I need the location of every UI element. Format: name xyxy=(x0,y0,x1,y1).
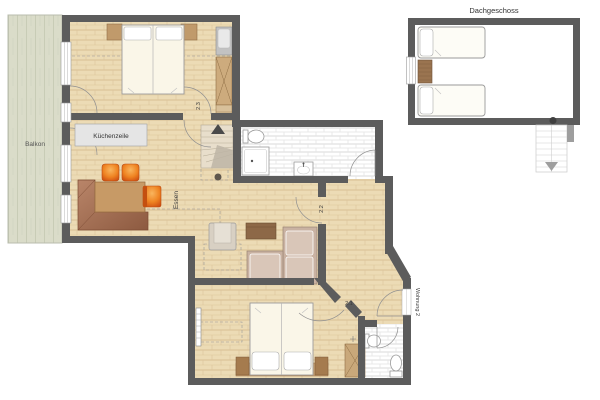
radiator-icon xyxy=(196,308,201,346)
nightstand-icon xyxy=(107,24,122,40)
wardrobe-icon xyxy=(216,57,232,105)
dining-label: Essen xyxy=(173,191,180,209)
room-code-23: 2.3 xyxy=(196,102,202,110)
nightstand-icon xyxy=(315,357,328,375)
stool-icon xyxy=(122,164,139,181)
tall-cabinet-icon xyxy=(216,27,232,55)
window-icon xyxy=(61,42,71,85)
entrance-door-threshold xyxy=(402,289,411,315)
stair-post-icon xyxy=(215,174,222,181)
nightstand-icon xyxy=(236,357,249,375)
double-bed-icon xyxy=(122,25,184,94)
single-bed-icon xyxy=(418,27,485,58)
dresser-icon xyxy=(418,60,432,83)
kitchen-unit-label: Küchenzeile xyxy=(93,133,129,140)
room-code-21: 2.1 xyxy=(345,301,353,307)
kitchen-unit: Küchenzeile xyxy=(75,124,147,146)
single-bed-icon xyxy=(418,85,485,116)
dining-table-icon xyxy=(95,182,145,212)
floorplan-svg: Balkon xyxy=(0,0,600,400)
toilet-icon xyxy=(243,130,264,143)
apartment-entrance-label: Wohnung 2 xyxy=(414,288,420,316)
double-bed-icon xyxy=(250,303,313,375)
balcony-label: Balkon xyxy=(25,141,45,148)
stool-icon xyxy=(102,164,119,181)
armchair-icon xyxy=(209,223,236,250)
toilet-icon xyxy=(390,355,402,377)
window-icon xyxy=(61,195,71,223)
shower-icon xyxy=(242,147,269,175)
window-icon xyxy=(407,57,416,84)
window-icon xyxy=(61,103,71,122)
chair-icon xyxy=(143,186,161,207)
window-icon xyxy=(61,145,71,182)
balcony: Balkon xyxy=(8,15,62,243)
sink-icon xyxy=(365,334,381,348)
sink-icon xyxy=(294,162,313,176)
stairs-down-icon xyxy=(536,125,574,172)
floorplan-image: Balkon xyxy=(0,0,600,400)
stair-post-icon xyxy=(550,117,557,124)
tv-board-icon xyxy=(246,223,276,239)
attic-title-label: Dachgeschoss xyxy=(469,6,518,15)
attic: Dachgeschoss xyxy=(418,6,574,172)
room-code-22: 2.2 xyxy=(319,205,325,213)
